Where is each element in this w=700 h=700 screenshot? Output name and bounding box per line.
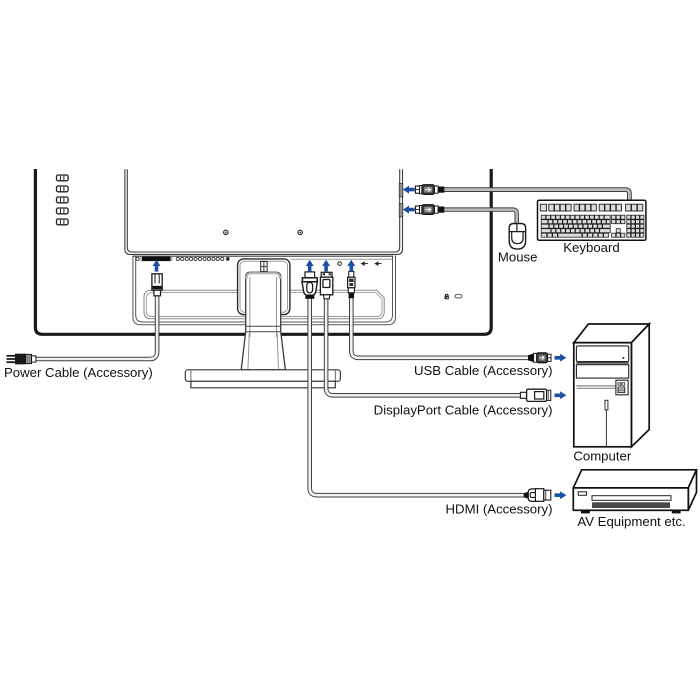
svg-text:HDMI (Accessory): HDMI (Accessory) (446, 502, 553, 517)
svg-text:Keyboard: Keyboard (563, 240, 619, 255)
svg-text:Power Cable (Accessory): Power Cable (Accessory) (4, 365, 153, 380)
svg-text:AV Equipment etc.: AV Equipment etc. (577, 514, 685, 529)
svg-text:DisplayPort Cable (Accessory): DisplayPort Cable (Accessory) (374, 403, 553, 418)
svg-text:Mouse: Mouse (498, 250, 538, 265)
svg-text:Computer: Computer (573, 448, 632, 463)
svg-text:USB Cable (Accessory): USB Cable (Accessory) (414, 363, 553, 378)
